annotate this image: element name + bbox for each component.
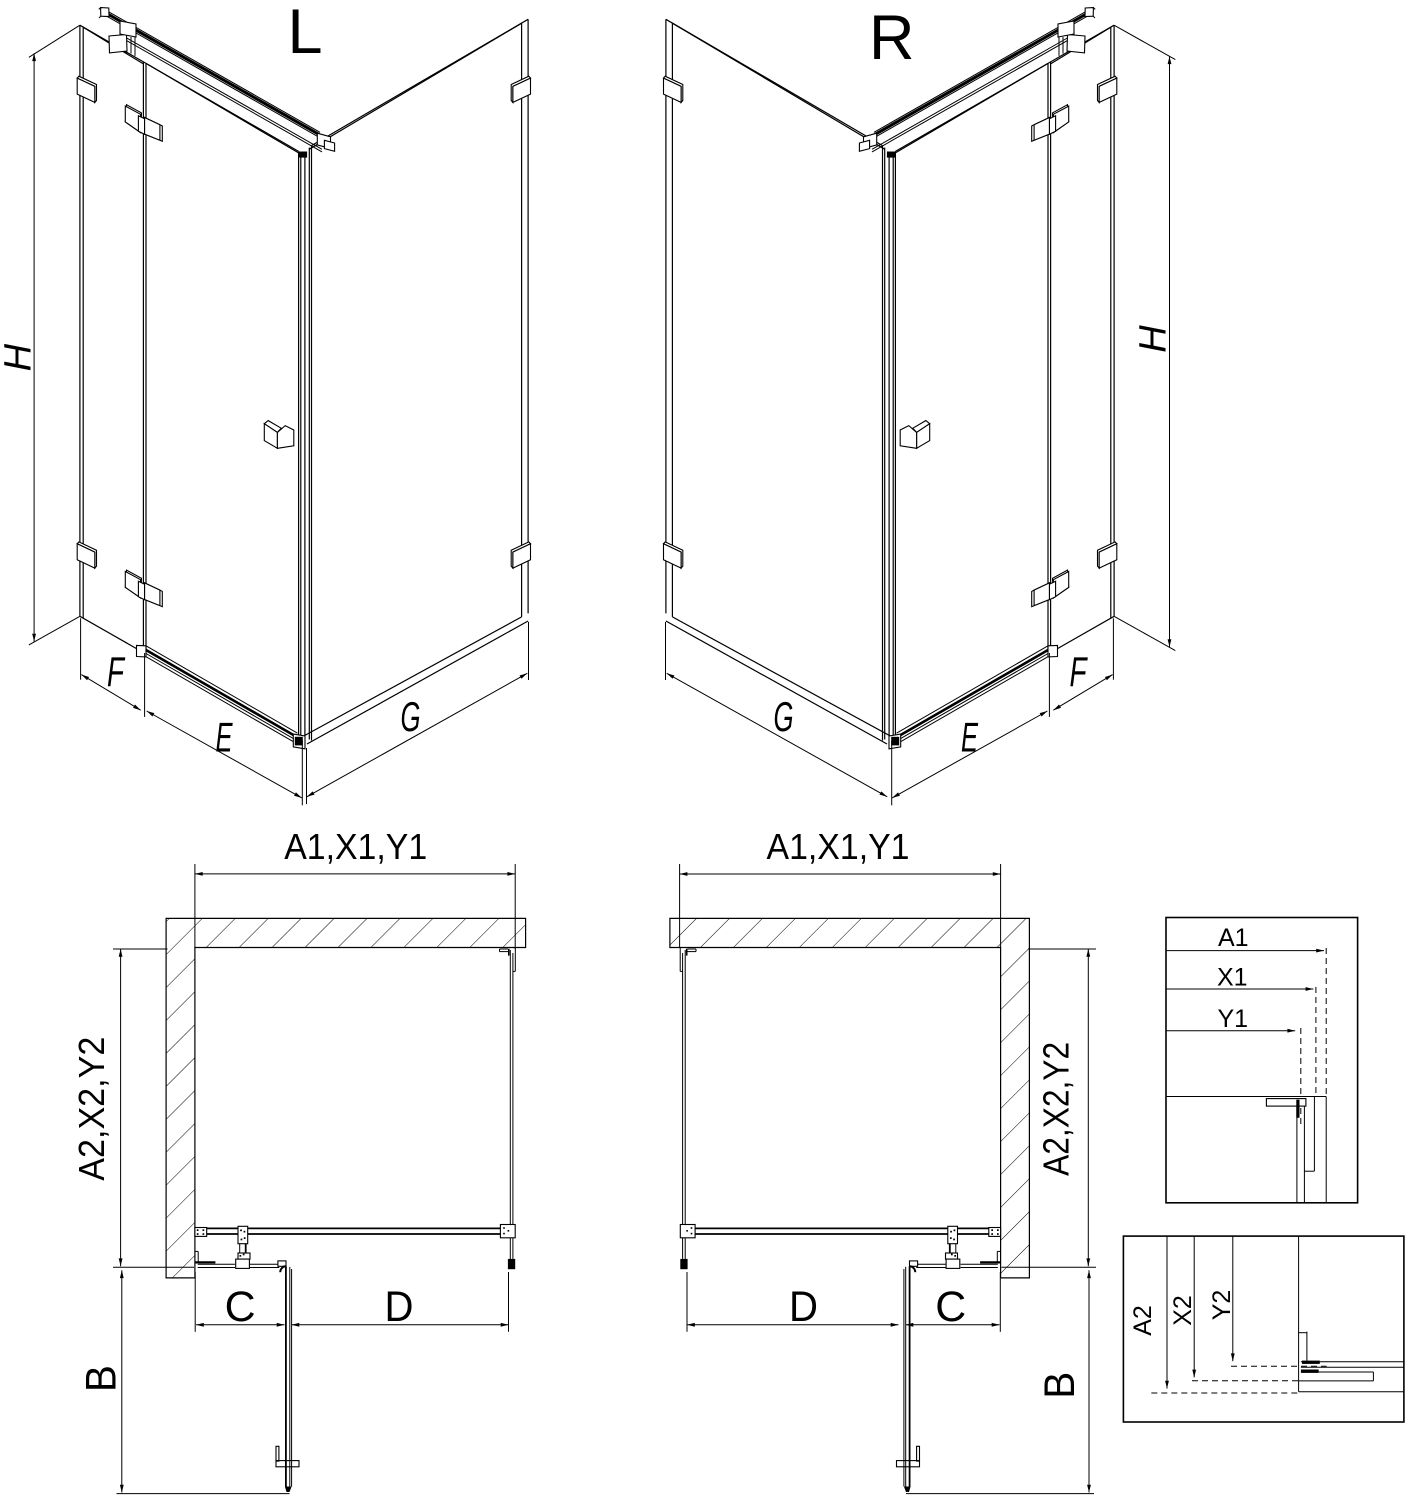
svg-text:X1: X1 [1217, 963, 1248, 991]
svg-text:A1: A1 [1218, 924, 1249, 952]
svg-text:G: G [401, 693, 421, 740]
svg-text:X2: X2 [1169, 1295, 1197, 1326]
svg-text:D: D [385, 1283, 414, 1331]
svg-text:E: E [961, 714, 979, 761]
svg-text:F: F [1070, 648, 1089, 695]
svg-text:A2,X2,Y2: A2,X2,Y2 [71, 1037, 112, 1181]
svg-text:A2: A2 [1129, 1305, 1157, 1336]
svg-text:L: L [288, 0, 323, 67]
svg-text:C: C [935, 1283, 966, 1331]
svg-text:H: H [1133, 325, 1175, 353]
svg-text:D: D [789, 1283, 818, 1331]
svg-text:F: F [107, 648, 126, 695]
svg-text:R: R [869, 3, 915, 73]
svg-text:Y1: Y1 [1218, 1005, 1249, 1033]
svg-text:G: G [774, 693, 794, 740]
svg-text:E: E [216, 714, 234, 761]
svg-text:Y2: Y2 [1208, 1290, 1236, 1321]
svg-text:B: B [1036, 1372, 1084, 1399]
svg-text:A1,X1,Y1: A1,X1,Y1 [767, 826, 910, 867]
svg-text:C: C [225, 1283, 256, 1331]
svg-text:H: H [0, 343, 40, 371]
svg-text:B: B [78, 1365, 126, 1392]
svg-text:A1,X1,Y1: A1,X1,Y1 [284, 826, 427, 867]
svg-text:A2,X2,Y2: A2,X2,Y2 [1036, 1042, 1077, 1176]
